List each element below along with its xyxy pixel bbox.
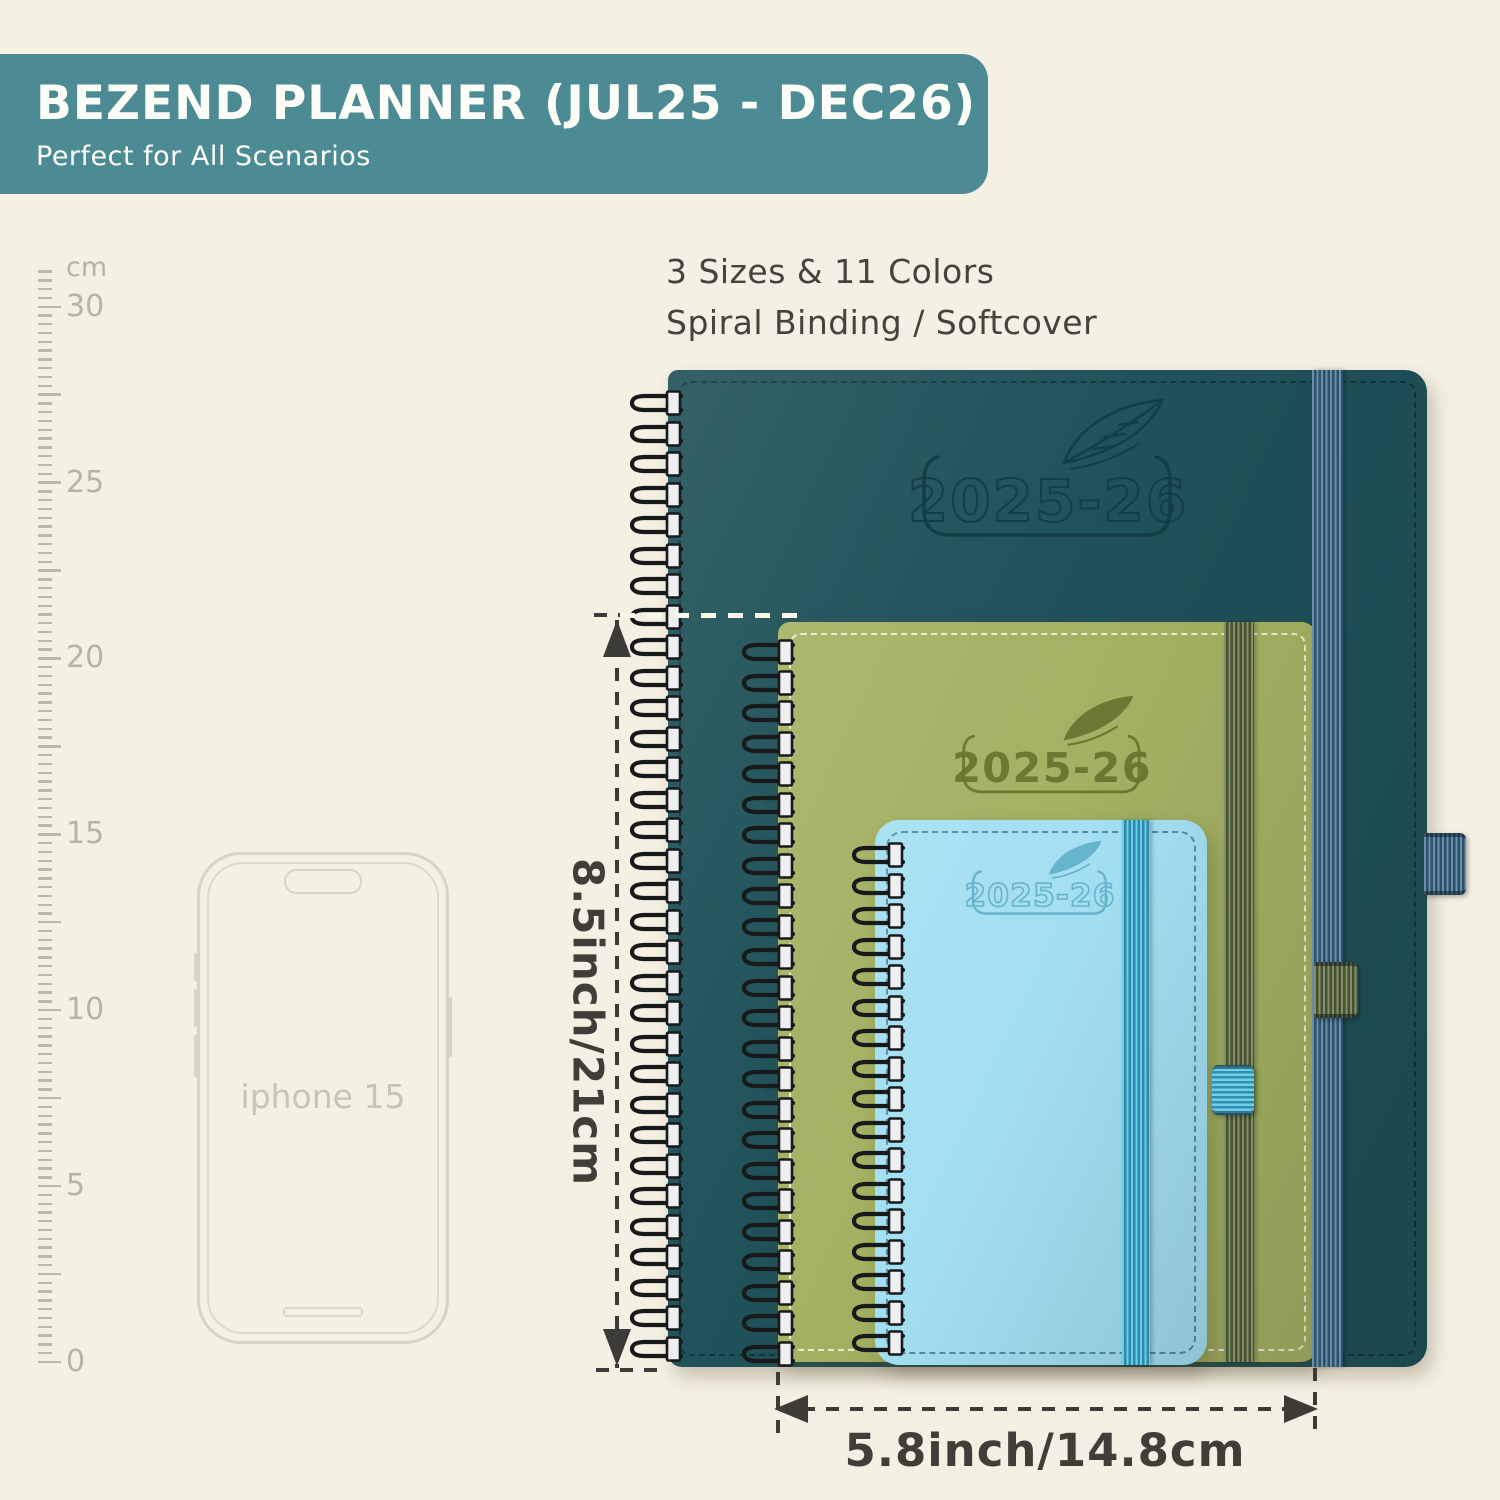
ruler-tick: [38, 490, 52, 492]
spiral-coil: [850, 933, 908, 961]
ruler-mark-label: 5: [66, 1170, 85, 1202]
spiral-coil: [740, 1004, 798, 1032]
ruler-tick: [38, 552, 52, 554]
spiral-coil: [740, 730, 798, 758]
dim-width-label: 5.8inch/14.8cm: [845, 1424, 1246, 1477]
spiral-coil: [628, 1243, 686, 1271]
ruler-tick: [38, 1352, 52, 1354]
ruler-tick: [38, 1361, 61, 1363]
ruler-tick: [38, 534, 52, 536]
ruler-tick: [38, 648, 52, 650]
ruler-tick: [38, 1264, 52, 1266]
phone-label: iphone 15: [200, 1077, 446, 1116]
feature-line-binding: Spiral Binding / Softcover: [666, 297, 1097, 348]
dim-width-line: [802, 1407, 1292, 1411]
spiral-coil: [628, 511, 686, 539]
ruler-tick: [38, 1027, 52, 1029]
ruler-tick: [38, 1079, 52, 1081]
ruler-tick: [38, 789, 52, 791]
dim-height-label: 8.5inch/21cm: [564, 858, 613, 1186]
ruler-tick: [38, 666, 52, 668]
feather-icon: [1049, 841, 1102, 878]
ruler-tick: [38, 508, 52, 510]
ruler-tick: [38, 904, 52, 906]
ruler-tick: [38, 1000, 52, 1002]
ruler-tick: [38, 1317, 52, 1319]
ruler-tick: [38, 279, 52, 281]
ruler-tick: [38, 842, 52, 844]
ruler-tick: [38, 1343, 52, 1345]
ruler-tick: [38, 385, 52, 387]
ruler-tick: [38, 446, 52, 448]
ruler-tick: [38, 561, 52, 563]
ruler-mark-label: 25: [66, 467, 104, 499]
spiral-coil: [628, 786, 686, 814]
ruler-tick: [38, 420, 52, 422]
ruler-tick: [38, 306, 61, 308]
ruler-tick: [38, 1176, 52, 1178]
spiral-coil: [850, 1085, 908, 1113]
ruler-tick: [38, 1106, 52, 1108]
ruler: cm 302520151050: [0, 0, 140, 1500]
spiral-coil: [628, 816, 686, 844]
ruler-tick: [38, 939, 52, 941]
spiral-coil: [628, 938, 686, 966]
spiral-coil: [740, 760, 798, 788]
planner-large-year-emblem: 2025-26: [908, 395, 1188, 545]
ruler-mark-label: 10: [66, 994, 104, 1026]
spiral-coil: [740, 821, 798, 849]
ruler-tick: [38, 974, 52, 976]
spiral-coil: [850, 872, 908, 900]
spiral-coil: [740, 882, 798, 910]
ruler-tick: [38, 860, 52, 862]
spiral-coil: [740, 1157, 798, 1185]
ruler-tick: [38, 684, 52, 686]
spiral-coil: [850, 1299, 908, 1327]
ruler-tick: [38, 1097, 61, 1099]
spiral-coil: [850, 1177, 908, 1205]
spiral-coil: [850, 841, 908, 869]
ruler-tick: [38, 270, 52, 272]
spiral-coil: [628, 1304, 686, 1332]
ruler-tick: [38, 877, 52, 879]
spiral-coil: [628, 481, 686, 509]
spiral-coil: [740, 1126, 798, 1154]
spiral-coil: [740, 1187, 798, 1215]
phone-outline: iphone 15: [197, 852, 449, 1344]
ruler-tick: [38, 1167, 52, 1169]
ruler-tick: [38, 499, 52, 501]
ruler-tick: [38, 1203, 52, 1205]
ruler-tick: [38, 367, 52, 369]
ruler-mark-label: 0: [66, 1346, 85, 1378]
spiral-coil: [740, 1248, 798, 1276]
ruler-tick: [38, 297, 52, 299]
spiral-coil: [628, 969, 686, 997]
ruler-tick: [38, 1229, 52, 1231]
ruler-tick: [38, 1334, 52, 1336]
ruler-tick: [38, 605, 52, 607]
ruler-tick: [38, 745, 61, 747]
ruler-tick: [38, 314, 52, 316]
ruler-tick: [38, 349, 52, 351]
ruler-tick: [38, 965, 52, 967]
ruler-tick: [38, 578, 52, 580]
ruler-tick: [38, 1273, 61, 1275]
planner-medium-year-emblem: 2025-26: [952, 692, 1152, 799]
ruler-tick: [38, 640, 52, 642]
ruler-tick: [38, 930, 52, 932]
ruler-tick: [38, 921, 61, 923]
spiral-coil: [628, 420, 686, 448]
spiral-coil: [628, 450, 686, 478]
product-image: BEZEND PLANNER (JUL25 - DEC26) Perfect f…: [0, 0, 1500, 1500]
ruler-tick: [38, 587, 52, 589]
ruler-tick: [38, 736, 52, 738]
ruler-tick: [38, 833, 61, 835]
ruler-tick: [38, 1255, 52, 1257]
ruler-tick: [38, 1299, 52, 1301]
spiral-coil: [850, 1268, 908, 1296]
ruler-tick: [38, 402, 52, 404]
dim-width-arrow-left: [774, 1395, 808, 1423]
ruler-mark-label: 30: [66, 291, 104, 323]
spiral-coil: [740, 1218, 798, 1246]
ruler-tick: [38, 332, 52, 334]
ruler-tick: [38, 728, 52, 730]
spiral-coil: [628, 999, 686, 1027]
svg-text:2025-26: 2025-26: [952, 744, 1152, 792]
ruler-tick: [38, 1326, 52, 1328]
spiral-coil: [628, 1335, 686, 1363]
ruler-tick: [38, 1132, 52, 1134]
spiral-coil: [850, 1024, 908, 1052]
title-banner: BEZEND PLANNER (JUL25 - DEC26) Perfect f…: [0, 54, 988, 194]
ruler-tick: [38, 464, 52, 466]
ruler-tick: [38, 1159, 52, 1161]
planner-small-pen-loop: [1212, 1065, 1254, 1115]
feather-icon: [1063, 696, 1133, 745]
ruler-tick: [38, 807, 52, 809]
ruler-tick: [38, 1246, 52, 1248]
ruler-tick: [38, 613, 52, 615]
ruler-tick: [38, 816, 52, 818]
ruler-tick: [38, 376, 52, 378]
spiral-coil: [740, 1035, 798, 1063]
spiral-coil: [740, 1065, 798, 1093]
ruler-tick: [38, 1290, 52, 1292]
spiral-coil: [628, 542, 686, 570]
ruler-tick: [38, 437, 52, 439]
ruler-tick: [38, 358, 52, 360]
ruler-tick: [38, 719, 52, 721]
dim-height-bottom-tick: [596, 1368, 658, 1372]
spiral-coil: [740, 1096, 798, 1124]
ruler-tick: [38, 754, 52, 756]
ruler-tick: [38, 1071, 52, 1073]
spiral-coil: [850, 1055, 908, 1083]
ruler-tick: [38, 1088, 52, 1090]
ruler-tick: [38, 1053, 52, 1055]
ruler-tick: [38, 1141, 52, 1143]
spiral-coil: [628, 847, 686, 875]
dim-height-line: [615, 620, 619, 1368]
ruler-unit-label: cm: [66, 252, 107, 283]
ruler-tick: [38, 1220, 52, 1222]
ruler-tick: [38, 1185, 61, 1187]
spiral-coil: [628, 1121, 686, 1149]
spiral-coil: [850, 902, 908, 930]
dim-height-extension-line: [620, 613, 808, 618]
spiral-coil: [628, 572, 686, 600]
spiral-coil: [628, 664, 686, 692]
dim-height-arrow-down: [603, 1329, 631, 1366]
planner-small-elastic-band: [1122, 820, 1150, 1365]
ruler-tick: [38, 947, 52, 949]
spiral-coil: [628, 389, 686, 417]
ruler-tick: [38, 473, 52, 475]
spiral-coil: [740, 852, 798, 880]
ruler-tick: [38, 517, 52, 519]
ruler-tick: [38, 701, 52, 703]
spiral-coil: [628, 908, 686, 936]
ruler-tick: [38, 455, 52, 457]
spiral-coil: [740, 791, 798, 819]
ruler-tick: [38, 411, 52, 413]
spiral-coil: [850, 1207, 908, 1235]
spiral-coil: [850, 1116, 908, 1144]
spiral-coil: [850, 1238, 908, 1266]
spiral-coil: [740, 943, 798, 971]
planner-medium-pen-loop: [1314, 962, 1358, 1018]
ruler-tick: [38, 780, 52, 782]
spiral-coil: [628, 755, 686, 783]
ruler-tick: [38, 525, 52, 527]
spiral-coil: [740, 974, 798, 1002]
ruler-mark-label: 15: [66, 818, 104, 850]
ruler-tick: [38, 341, 52, 343]
ruler-tick: [38, 543, 52, 545]
ruler-tick: [38, 798, 52, 800]
ruler-tick: [38, 1035, 52, 1037]
spiral-coil: [628, 1060, 686, 1088]
spiral-coil: [628, 633, 686, 661]
ruler-tick: [38, 622, 52, 624]
svg-text:2025-26: 2025-26: [964, 878, 1115, 914]
ruler-tick: [38, 983, 52, 985]
planner-medium-elastic-band: [1224, 622, 1254, 1362]
speaker-slot: [283, 1307, 363, 1317]
svg-text:2025-26: 2025-26: [908, 467, 1188, 535]
ruler-tick: [38, 1150, 52, 1152]
banner-title: BEZEND PLANNER (JUL25 - DEC26): [36, 78, 988, 130]
feather-icon: [1064, 400, 1162, 469]
dim-width-arrow-right: [1284, 1395, 1318, 1423]
ruler-tick: [38, 1009, 61, 1011]
ruler-tick: [38, 1044, 52, 1046]
ruler-tick: [38, 956, 52, 958]
ruler-tick: [38, 772, 52, 774]
spiral-coil: [628, 1152, 686, 1180]
spiral-coil: [628, 1182, 686, 1210]
spiral-coil: [740, 1340, 798, 1368]
spiral-coil: [740, 638, 798, 666]
ruler-tick: [38, 675, 52, 677]
spiral-coil: [850, 1146, 908, 1174]
ruler-tick: [38, 1308, 52, 1310]
feature-line-sizes: 3 Sizes & 11 Colors: [666, 246, 1097, 297]
ruler-tick: [38, 481, 61, 483]
planner-large-pen-loop: [1424, 833, 1466, 895]
spiral-coil: [628, 1213, 686, 1241]
spiral-coil: [628, 1030, 686, 1058]
ruler-tick: [38, 288, 52, 290]
ruler-tick: [38, 824, 52, 826]
ruler-tick: [38, 763, 52, 765]
volume-down-button: [194, 1035, 198, 1077]
ruler-tick: [38, 323, 52, 325]
ruler-tick: [38, 1238, 52, 1240]
power-button: [448, 997, 452, 1057]
ruler-tick: [38, 657, 61, 659]
ruler-tick: [38, 1115, 52, 1117]
ruler-tick: [38, 868, 52, 870]
spiral-coil: [628, 725, 686, 753]
spiral-coil: [740, 1279, 798, 1307]
ruler-tick: [38, 596, 52, 598]
spiral-coil: [740, 913, 798, 941]
mute-switch: [194, 953, 198, 981]
ruler-tick: [38, 1018, 52, 1020]
volume-up-button: [194, 989, 198, 1027]
ruler-mark-label: 20: [66, 642, 104, 674]
ruler-tick: [38, 1123, 52, 1125]
spiral-coil: [628, 694, 686, 722]
spiral-coil: [628, 1091, 686, 1119]
ruler-tick: [38, 1062, 52, 1064]
ruler-tick: [38, 710, 52, 712]
planner-large-elastic-band: [1312, 370, 1343, 1367]
ruler-tick: [38, 393, 61, 395]
dynamic-island: [284, 869, 362, 894]
dim-height-top-tick: [594, 613, 620, 617]
ruler-tick: [38, 631, 52, 633]
ruler-tick: [38, 886, 52, 888]
ruler-tick: [38, 692, 52, 694]
feature-text: 3 Sizes & 11 Colors Spiral Binding / Sof…: [666, 246, 1097, 348]
ruler-tick: [38, 569, 61, 571]
ruler-tick: [38, 912, 52, 914]
spiral-coil: [850, 1329, 908, 1357]
spiral-coil: [628, 877, 686, 905]
ruler-tick: [38, 1211, 52, 1213]
spiral-coil: [628, 1274, 686, 1302]
spiral-coil: [740, 1309, 798, 1337]
ruler-tick: [38, 991, 52, 993]
planner-small-cover: 2025-26: [875, 820, 1207, 1365]
ruler-tick: [38, 851, 52, 853]
spiral-coil: [850, 963, 908, 991]
spiral-coil: [850, 994, 908, 1022]
banner-subtitle: Perfect for All Scenarios: [36, 141, 988, 172]
spiral-coil: [740, 669, 798, 697]
ruler-tick: [38, 429, 52, 431]
dim-height-arrow-up: [603, 620, 631, 657]
ruler-tick: [38, 1282, 52, 1284]
spiral-coil: [740, 699, 798, 727]
ruler-tick: [38, 1194, 52, 1196]
planner-small-year-emblem: 2025-26: [964, 838, 1116, 919]
ruler-tick: [38, 895, 52, 897]
